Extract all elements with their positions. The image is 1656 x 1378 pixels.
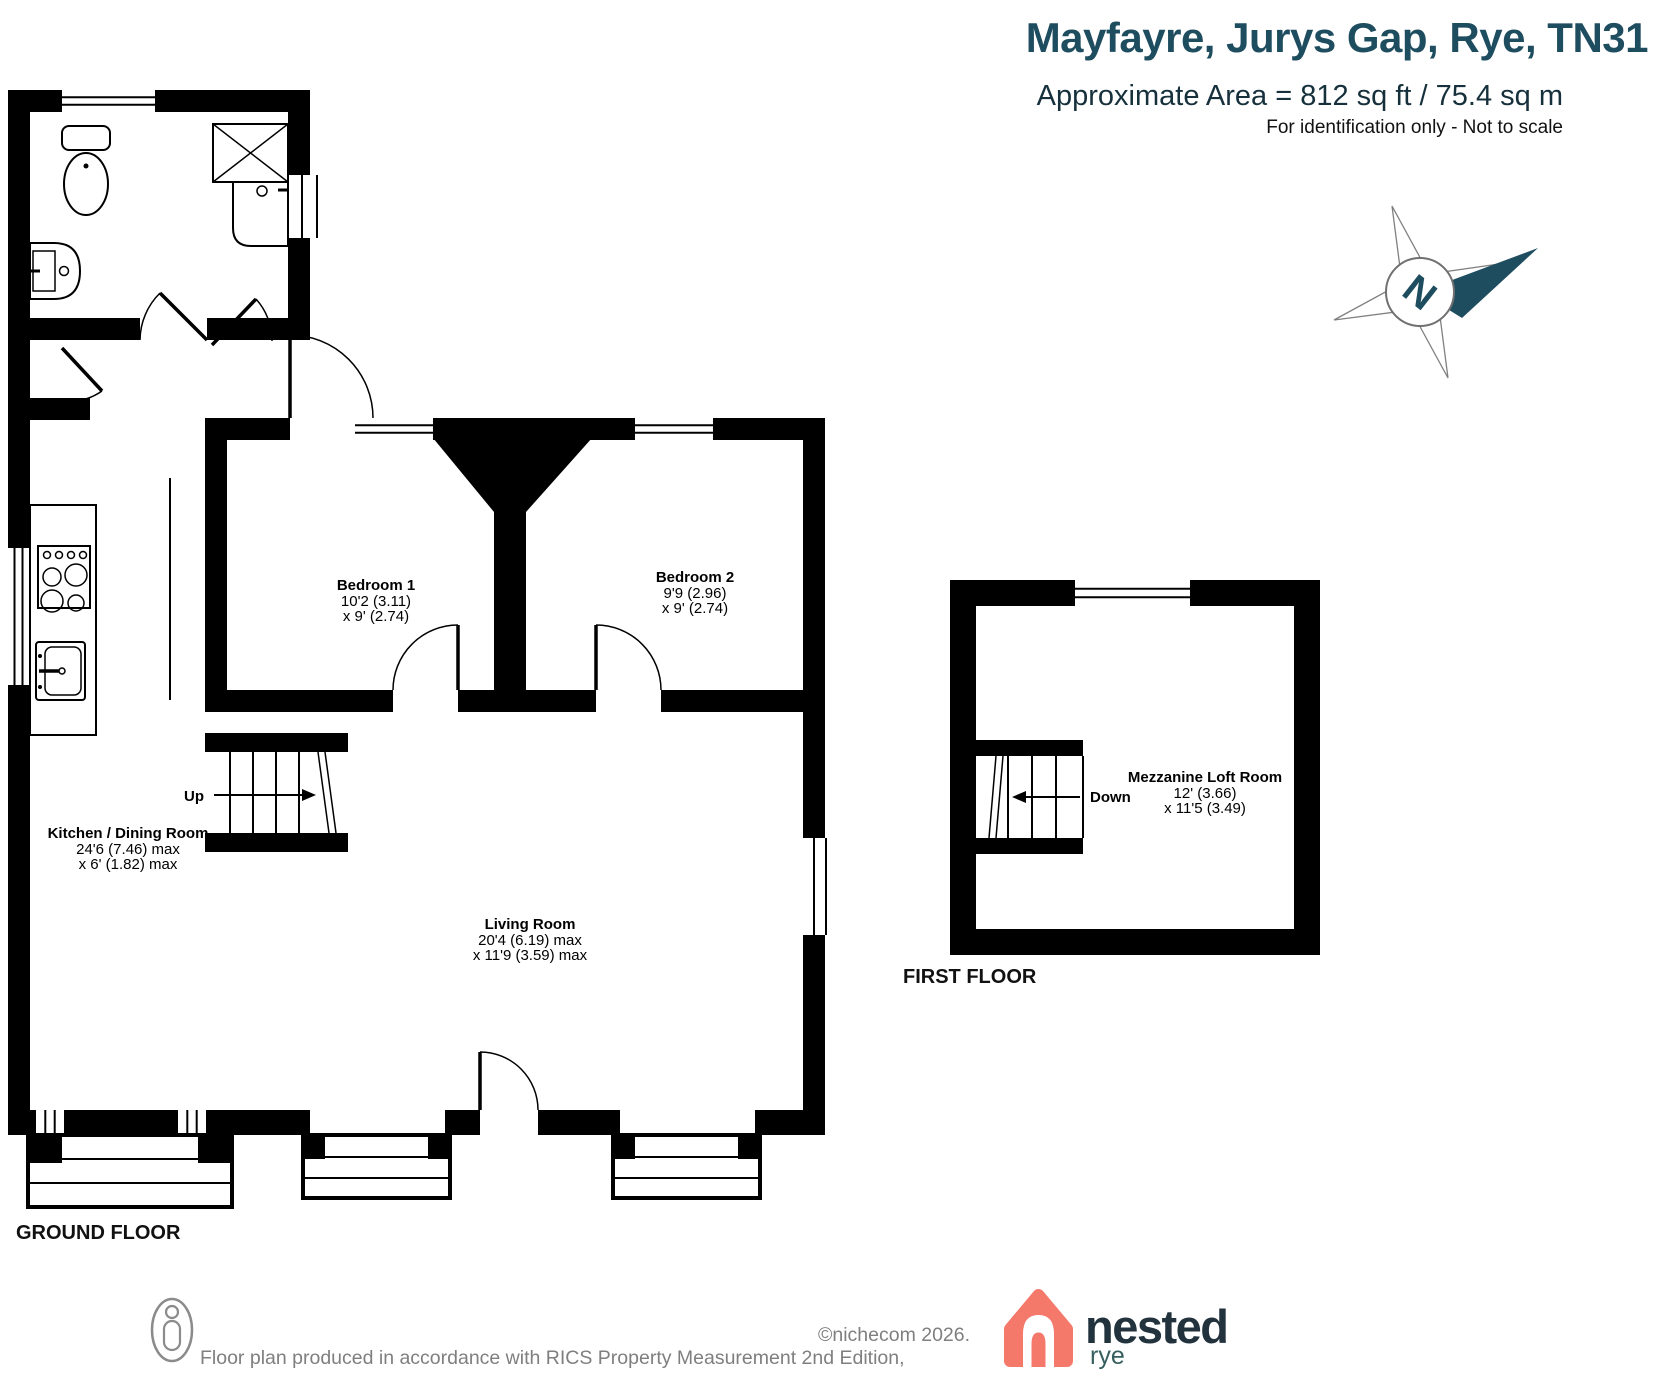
chimney-breast bbox=[433, 438, 592, 512]
ground-floor-plan bbox=[8, 90, 838, 1207]
bay-window bbox=[303, 1135, 450, 1198]
approximate-area: Approximate Area = 812 sq ft / 75.4 sq m bbox=[1037, 80, 1563, 113]
nested-logo-icon bbox=[1010, 1295, 1067, 1367]
room-label-mezzanine: Mezzanine Loft Room 12' (3.66) x 11'5 (3… bbox=[1105, 770, 1305, 817]
bay-window bbox=[613, 1135, 760, 1198]
page-title: Mayfayre, Jurys Gap, Rye, TN31 bbox=[1026, 14, 1648, 62]
bay-windows bbox=[28, 1135, 760, 1207]
bathroom-fixtures bbox=[30, 124, 288, 299]
room-label-living: Living Room 20'4 (6.19) max x 11'9 (3.59… bbox=[430, 917, 630, 964]
room-label-bedroom1: Bedroom 1 10'2 (3.11) x 9' (2.74) bbox=[276, 578, 476, 625]
toilet-icon bbox=[62, 126, 110, 150]
first-floor-plan bbox=[950, 580, 1320, 955]
copyright-text: ©nichecom 2026. bbox=[818, 1324, 970, 1347]
footer-disclaimer: Floor plan produced in accordance with R… bbox=[200, 1302, 909, 1378]
identification-note: For identification only - Not to scale bbox=[1266, 117, 1563, 139]
stairs-up-label: Up bbox=[168, 788, 204, 805]
floorplan-graphics: N bbox=[0, 0, 1656, 1378]
room-label-kitchen: Kitchen / Dining Room 24'6 (7.46) max x … bbox=[28, 826, 228, 873]
footer-line-1: Floor plan produced in accordance with R… bbox=[200, 1347, 909, 1370]
toilet-bowl-icon bbox=[64, 153, 108, 215]
staircase-down bbox=[976, 740, 1083, 854]
stairs-down-label: Down bbox=[1090, 789, 1131, 806]
kitchen-fixtures bbox=[30, 478, 170, 735]
first-floor-caption: FIRST FLOOR bbox=[903, 966, 1036, 989]
floorplan-page: N Mayfayre, Jurys Gap, Rye, TN31 Approxi… bbox=[0, 0, 1656, 1378]
room-label-bedroom2: Bedroom 2 9'9 (2.96) x 9' (2.74) bbox=[595, 570, 795, 617]
rics-person-icon bbox=[152, 1299, 192, 1361]
ground-floor-caption: GROUND FLOOR bbox=[16, 1222, 180, 1245]
compass-icon: N bbox=[1334, 206, 1538, 378]
nested-brand-subtext: rye bbox=[1090, 1344, 1125, 1369]
